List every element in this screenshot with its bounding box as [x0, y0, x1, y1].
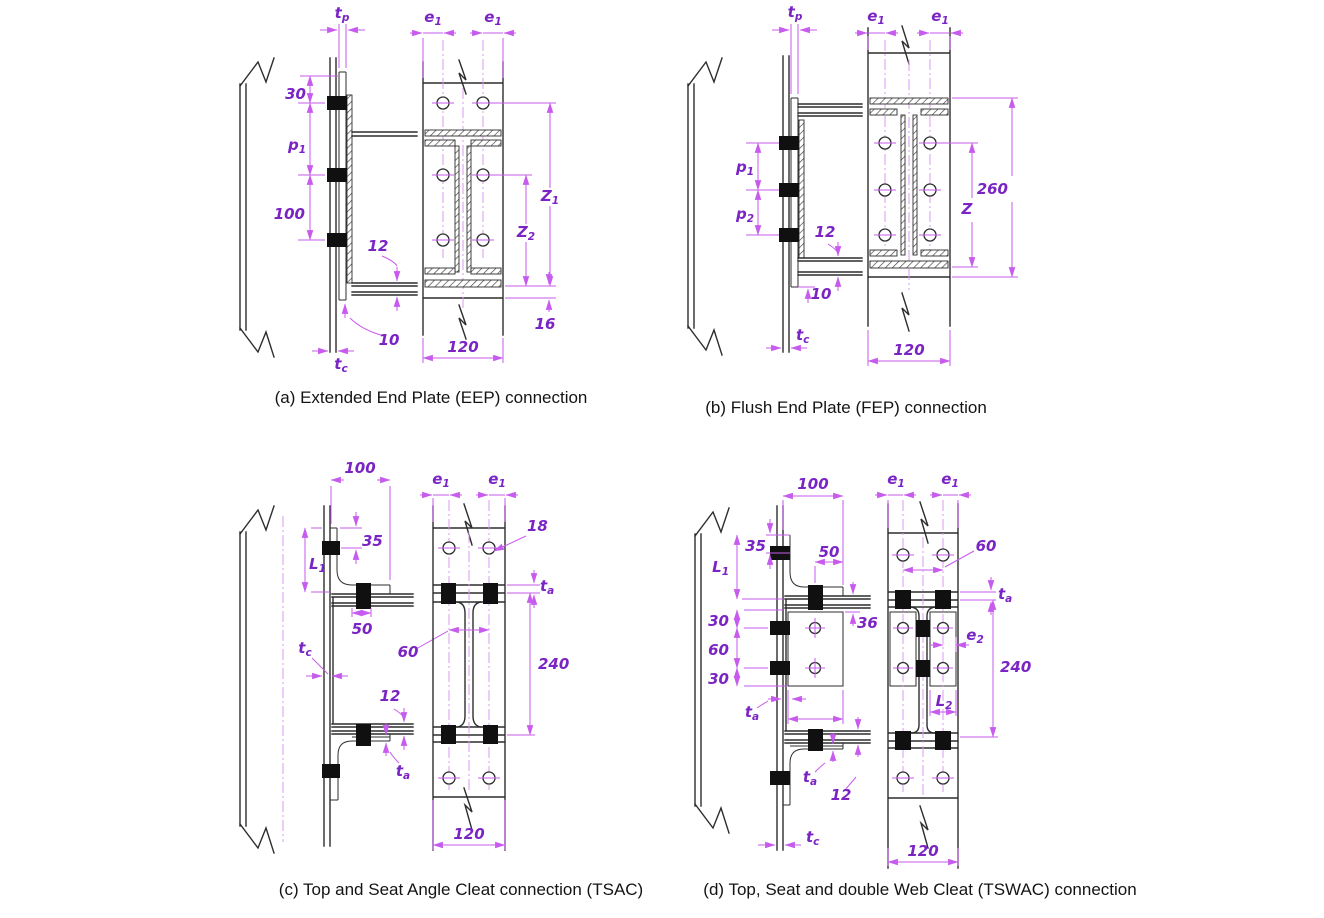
dim-label-12: 12: [815, 223, 836, 241]
dim-label-60: 60: [398, 643, 419, 661]
dim-label-35: 35: [362, 532, 383, 550]
dim-label-z: Z: [961, 200, 974, 218]
dim-label-30: 30: [285, 85, 306, 103]
caption-b: (b) Flush End Plate (FEP) connection: [705, 398, 987, 417]
dim-label-50: 50: [819, 543, 840, 561]
connection-details-drawing: tp 30 p1 100 12 10 tc: [0, 0, 1324, 918]
caption-c: (c) Top and Seat Angle Cleat connection …: [279, 880, 643, 899]
dim-label-10: 10: [811, 285, 832, 303]
dim-label-30: 30: [708, 612, 729, 630]
dim-label-100: 100: [274, 205, 305, 223]
weld-hatch: [799, 120, 804, 258]
dim-label-10: 10: [379, 331, 400, 349]
dim-label-240: 240: [538, 655, 569, 673]
caption-d: (d) Top, Seat and double Web Cleat (TSWA…: [703, 880, 1136, 899]
dim-label-60: 60: [976, 537, 997, 555]
dim-label-12: 12: [831, 786, 852, 804]
dim-label-120: 120: [453, 825, 484, 843]
dim-label-12: 12: [368, 237, 389, 255]
dim-label-36: 36: [857, 614, 878, 632]
dim-label-100: 100: [344, 459, 375, 477]
background: [0, 0, 1324, 918]
dim-label-240: 240: [1000, 658, 1031, 676]
weld-hatch: [347, 95, 352, 283]
dim-label-18: 18: [527, 517, 548, 535]
dim-label-35: 35: [745, 537, 766, 555]
dim-label-120: 120: [447, 338, 478, 356]
dim-label-50: 50: [352, 620, 373, 638]
dim-label-100: 100: [797, 475, 828, 493]
caption-a: (a) Extended End Plate (EEP) connection: [275, 388, 588, 407]
dim-label-30: 30: [708, 670, 729, 688]
dim-label-120: 120: [907, 842, 938, 860]
dim-label-12: 12: [380, 687, 401, 705]
dim-label-16: 16: [535, 315, 556, 333]
dim-label-60: 60: [708, 641, 729, 659]
dim-label-120: 120: [893, 341, 924, 359]
figure-canvas: tp 30 p1 100 12 10 tc: [0, 0, 1324, 918]
dim-label-260: 260: [977, 180, 1008, 198]
